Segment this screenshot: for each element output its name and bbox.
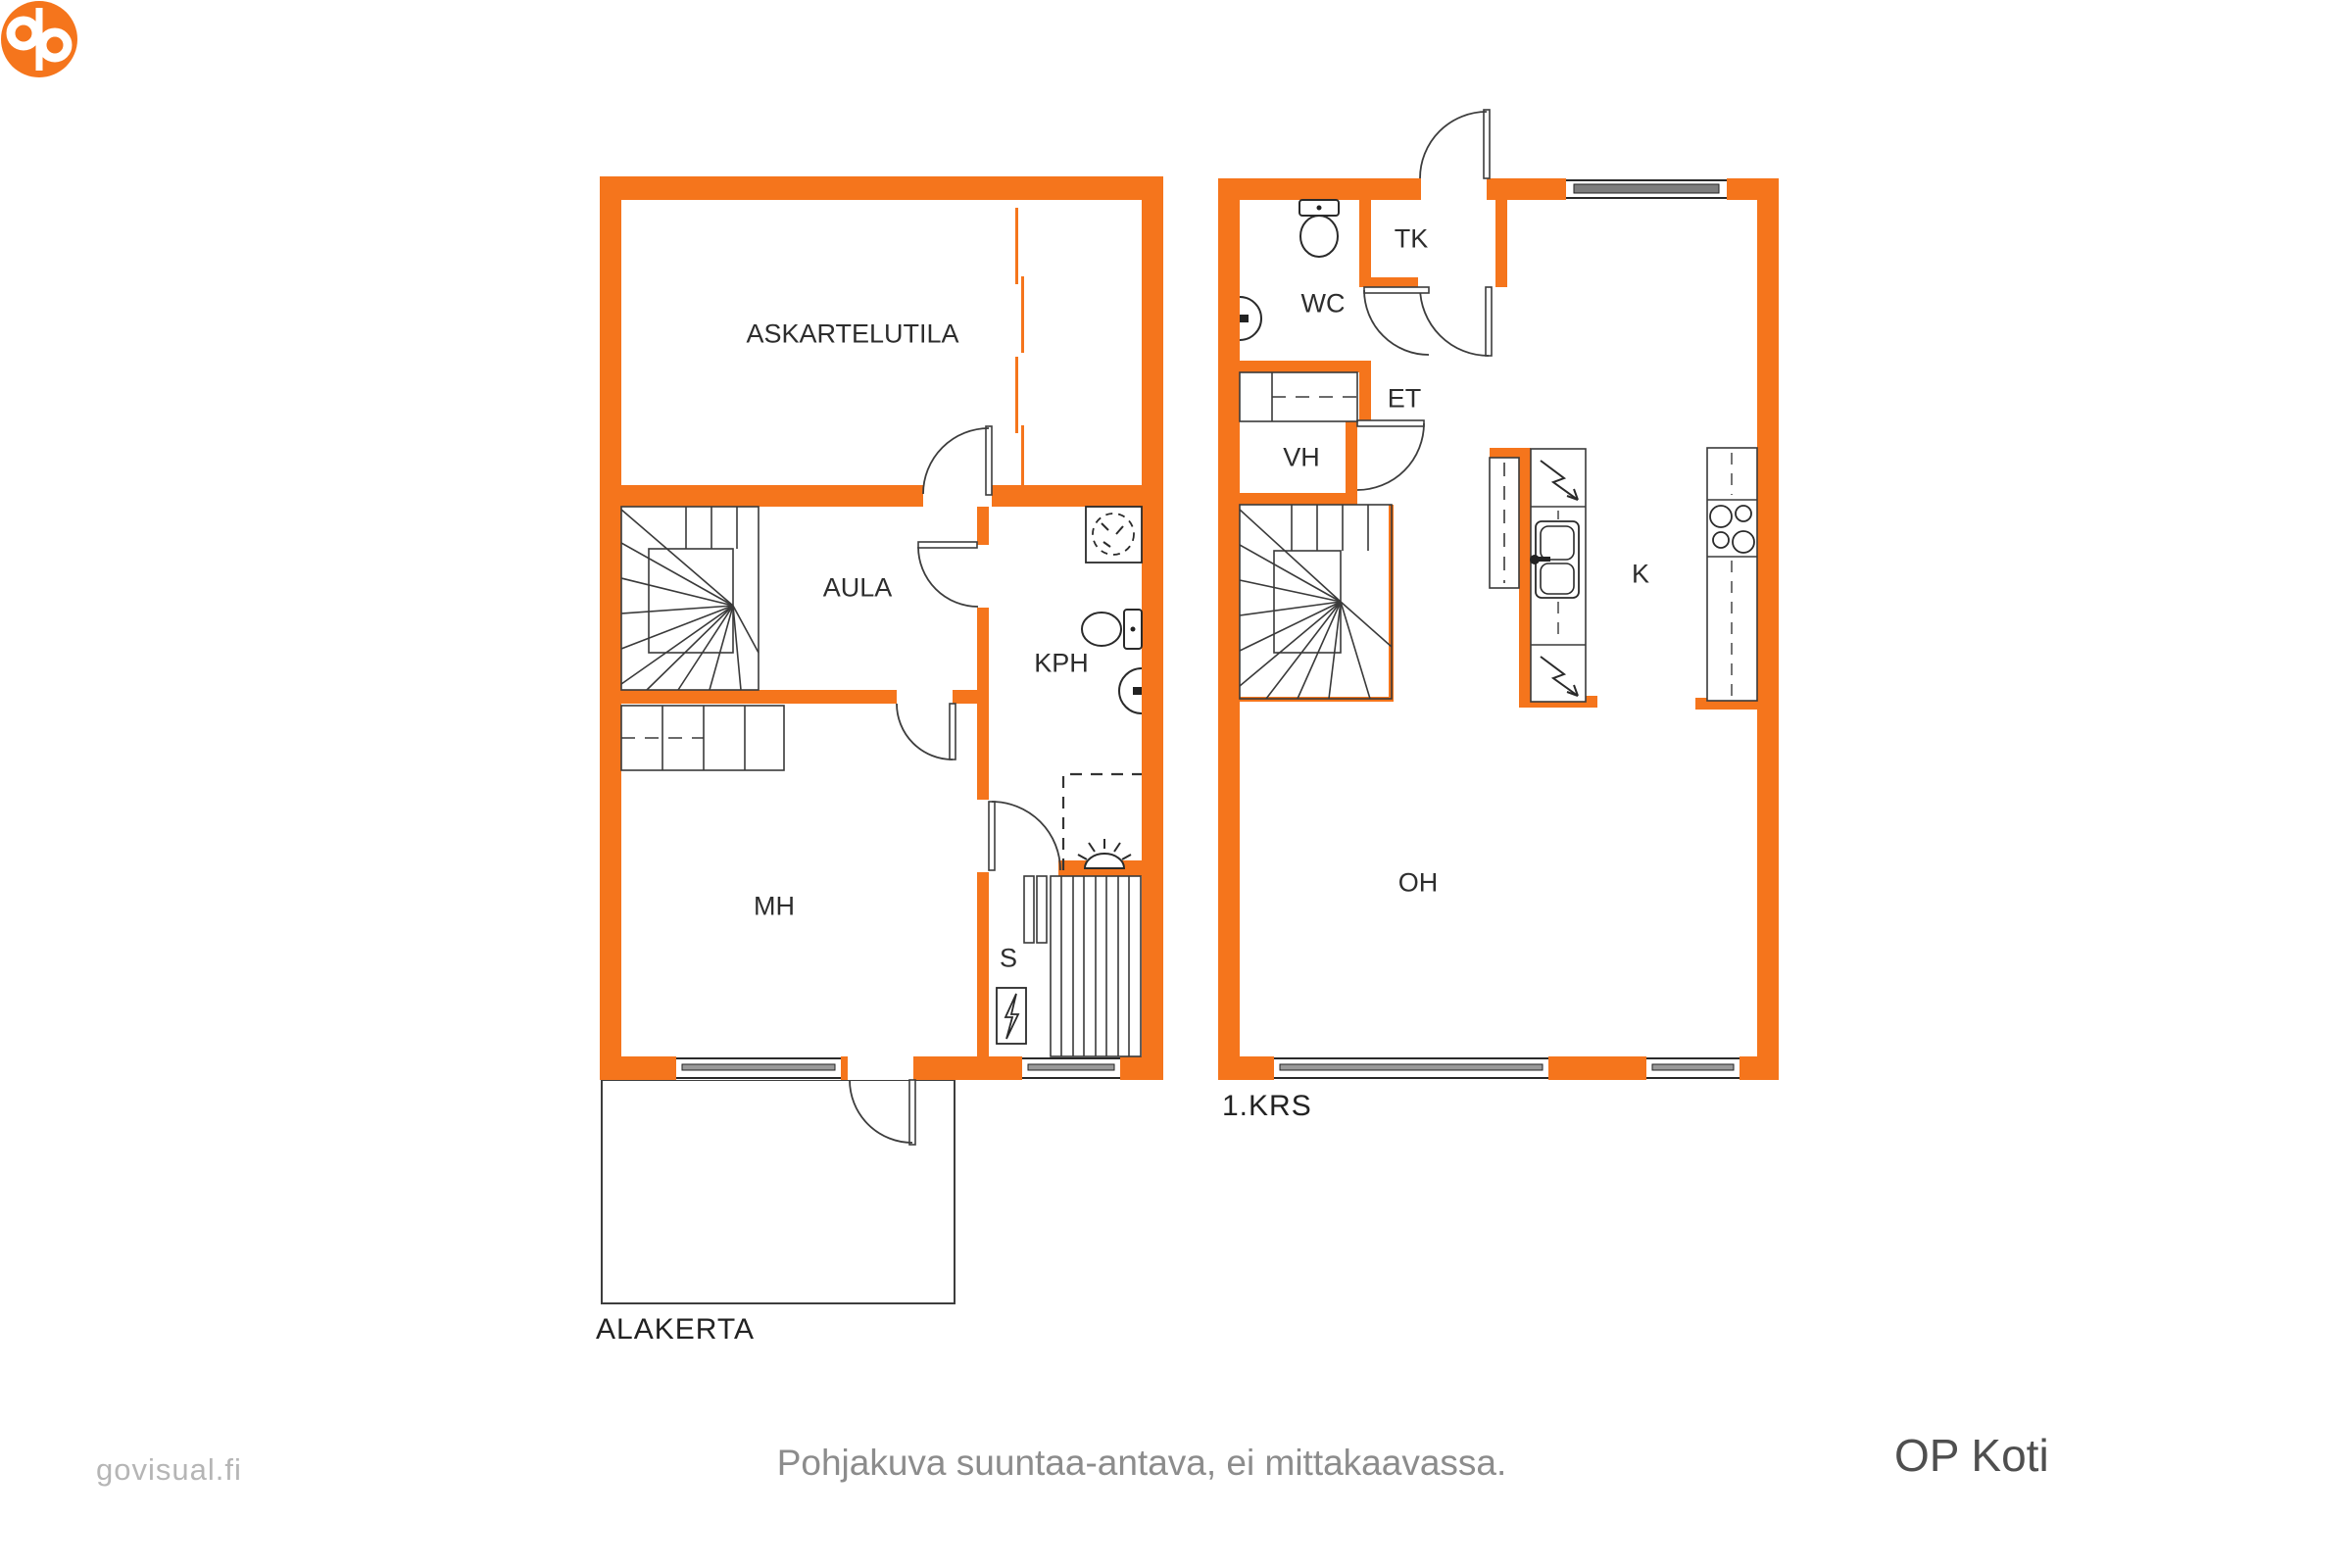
room-label-wc: WC <box>1301 289 1346 319</box>
plan-title-alakerta: ALAKERTA <box>596 1313 755 1347</box>
kph-fixtures <box>1063 507 1142 870</box>
room-label-oh: OH <box>1398 868 1439 899</box>
wc-fixtures <box>1240 200 1339 340</box>
room-label-et: ET <box>1388 384 1422 415</box>
kitchen-island <box>1530 449 1586 702</box>
room-label-aula: AULA <box>823 573 893 604</box>
op-logo-icon <box>0 0 78 78</box>
door-mh <box>897 704 955 759</box>
toilet-icon <box>1299 200 1339 257</box>
kitchen-counter <box>1707 448 1757 701</box>
terrace-outline <box>602 1080 955 1303</box>
sauna-heater-icon <box>997 988 1026 1044</box>
sink-icon <box>1119 668 1142 713</box>
room-label-s: S <box>1000 944 1017 974</box>
sauna-light-icon <box>1078 839 1131 868</box>
sauna-benches <box>1024 876 1141 1056</box>
door-kph-sauna <box>989 802 1060 870</box>
floorplan-page: ASKARTELUTILA AULA KPH MH S ALAKERTA WC … <box>0 0 2352 1568</box>
room-label-askartelutila: ASKARTELUTILA <box>746 319 958 350</box>
window-oh-right <box>1646 1056 1739 1080</box>
doors-1krs <box>1357 110 1492 490</box>
ceiling-fan-icon <box>1086 507 1142 563</box>
window-mh <box>676 1056 841 1080</box>
door-vh <box>1357 420 1424 490</box>
plan-title-1krs: 1.KRS <box>1222 1090 1312 1123</box>
glass-partition <box>1015 208 1024 496</box>
window-top <box>1566 178 1727 200</box>
window-oh-left <box>1274 1056 1548 1080</box>
floor-plan-1krs <box>1218 110 1779 1080</box>
vh-closet <box>1240 372 1357 421</box>
door-wc <box>1364 287 1429 355</box>
floorplan-drawing <box>0 0 2352 1568</box>
sauna-fixtures <box>997 876 1141 1056</box>
door-tk-et <box>1420 287 1492 356</box>
op-koti-logo-text: OP Koti <box>1894 1429 2049 1482</box>
room-label-kph: KPH <box>1034 649 1089 679</box>
stairs-1krs <box>1240 505 1392 699</box>
toilet-icon <box>1082 610 1142 649</box>
hall-cabinet <box>1490 458 1519 588</box>
room-label-vh: VH <box>1283 443 1320 473</box>
room-label-tk: TK <box>1395 224 1429 255</box>
room-label-k: K <box>1632 560 1649 590</box>
door-aula-kph <box>918 542 978 607</box>
window-sauna <box>1022 1056 1120 1080</box>
kitchen-sink-icon <box>1530 521 1579 598</box>
sink-icon <box>1240 297 1261 340</box>
entrance-door <box>1420 110 1490 178</box>
doors-alakerta <box>850 426 1060 1145</box>
entrance-opening <box>1421 178 1487 200</box>
stairs-alakerta <box>621 507 759 690</box>
outer-walls-alakerta <box>600 176 1163 1080</box>
room-label-mh: MH <box>754 892 795 922</box>
wardrobe-alakerta <box>621 706 784 770</box>
door-askartelutila <box>923 426 992 495</box>
